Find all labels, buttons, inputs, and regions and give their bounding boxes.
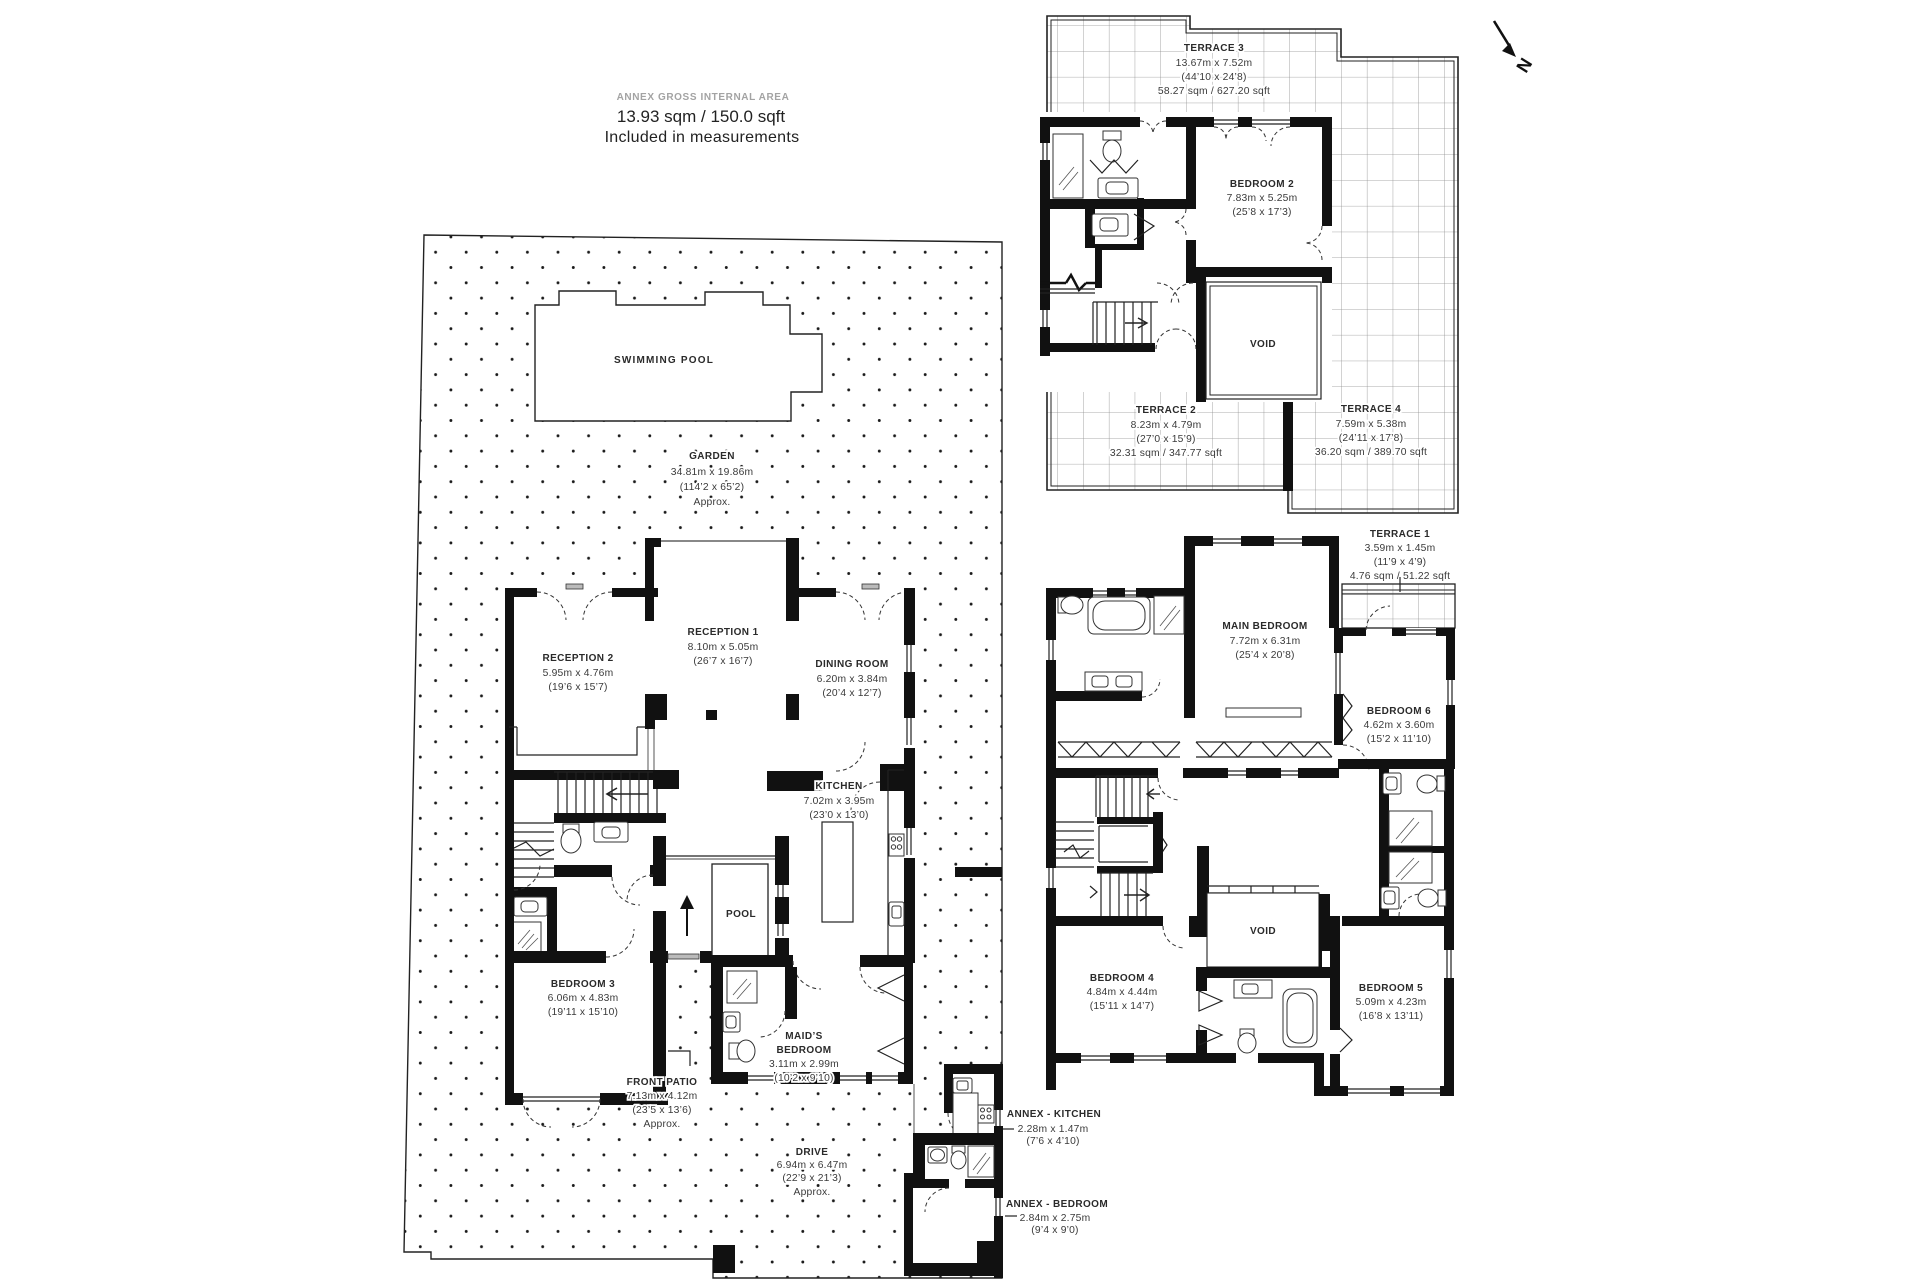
svg-text:(25’4 x 20’8): (25’4 x 20’8) <box>1235 650 1294 661</box>
svg-text:58.27 sqm / 627.20 sqft: 58.27 sqm / 627.20 sqft <box>1158 86 1270 97</box>
svg-text:5.95m x 4.76m: 5.95m x 4.76m <box>543 668 614 679</box>
svg-text:Included in measurements: Included in measurements <box>605 129 800 146</box>
svg-text:BEDROOM: BEDROOM <box>776 1045 831 1056</box>
svg-text:(44’10 x 24’8): (44’10 x 24’8) <box>1181 72 1246 83</box>
svg-text:2.84m x 2.75m: 2.84m x 2.75m <box>1020 1213 1091 1224</box>
svg-text:(16’8 x 13’11): (16’8 x 13’11) <box>1359 1011 1423 1022</box>
svg-text:3.11m x 2.99m: 3.11m x 2.99m <box>769 1059 839 1070</box>
svg-text:7.59m x 5.38m: 7.59m x 5.38m <box>1336 419 1407 430</box>
svg-text:7.02m x 3.95m: 7.02m x 3.95m <box>804 796 875 807</box>
svg-text:13.67m x 7.52m: 13.67m x 7.52m <box>1176 58 1253 69</box>
svg-text:BEDROOM 3: BEDROOM 3 <box>551 979 615 990</box>
svg-text:(15’2 x 11’10): (15’2 x 11’10) <box>1367 734 1431 745</box>
svg-text:Approx.: Approx. <box>694 497 731 508</box>
svg-text:(10’2 x 9’10): (10’2 x 9’10) <box>774 1073 833 1084</box>
svg-text:8.10m x 5.05m: 8.10m x 5.05m <box>688 642 759 653</box>
svg-text:Approx.: Approx. <box>794 1187 831 1198</box>
svg-text:BEDROOM 2: BEDROOM 2 <box>1230 179 1294 190</box>
svg-text:(114’2 x 65’2): (114’2 x 65’2) <box>680 482 744 493</box>
svg-text:SWIMMING POOL: SWIMMING POOL <box>614 355 714 366</box>
svg-text:FRONT PATIO: FRONT PATIO <box>627 1077 698 1088</box>
svg-text:6.94m x 6.47m: 6.94m x 6.47m <box>777 1160 848 1171</box>
svg-text:RECEPTION 2: RECEPTION 2 <box>542 653 613 664</box>
svg-text:7.83m x 5.25m: 7.83m x 5.25m <box>1227 193 1298 204</box>
svg-text:(19’11 x 15’10): (19’11 x 15’10) <box>548 1007 618 1018</box>
svg-text:RECEPTION 1: RECEPTION 1 <box>687 627 758 638</box>
svg-text:TERRACE 1: TERRACE 1 <box>1370 529 1430 540</box>
svg-text:13.93 sqm / 150.0 sqft: 13.93 sqm / 150.0 sqft <box>617 107 785 126</box>
svg-text:(15’11 x 14’7): (15’11 x 14’7) <box>1090 1001 1154 1012</box>
svg-text:TERRACE 2: TERRACE 2 <box>1136 405 1196 416</box>
svg-text:(9’4 x 9’0): (9’4 x 9’0) <box>1031 1225 1078 1236</box>
svg-text:VOID: VOID <box>1250 926 1276 937</box>
svg-text:KITCHEN: KITCHEN <box>815 781 862 792</box>
svg-text:TERRACE 4: TERRACE 4 <box>1341 404 1401 415</box>
svg-text:34.81m x 19.86m: 34.81m x 19.86m <box>671 467 754 478</box>
svg-text:4.62m x 3.60m: 4.62m x 3.60m <box>1364 720 1435 731</box>
svg-text:(20’4 x 12’7): (20’4 x 12’7) <box>822 688 881 699</box>
svg-text:(25’8 x 17’3): (25’8 x 17’3) <box>1232 207 1291 218</box>
svg-text:BEDROOM 6: BEDROOM 6 <box>1367 706 1431 717</box>
svg-text:(22’9 x 21’3): (22’9 x 21’3) <box>782 1173 841 1184</box>
svg-text:BEDROOM 5: BEDROOM 5 <box>1359 983 1423 994</box>
svg-text:TERRACE 3: TERRACE 3 <box>1184 43 1244 54</box>
svg-text:6.20m x 3.84m: 6.20m x 3.84m <box>817 674 888 685</box>
svg-text:(23’5 x 13’6): (23’5 x 13’6) <box>632 1105 691 1116</box>
svg-text:(19’6 x 15’7): (19’6 x 15’7) <box>548 682 607 693</box>
svg-text:(26’7 x 16’7): (26’7 x 16’7) <box>693 656 752 667</box>
svg-text:8.23m x 4.79m: 8.23m x 4.79m <box>1131 420 1202 431</box>
svg-text:2.28m x 1.47m: 2.28m x 1.47m <box>1018 1124 1089 1135</box>
svg-text:DINING ROOM: DINING ROOM <box>815 659 888 670</box>
svg-text:DRIVE: DRIVE <box>796 1147 829 1158</box>
svg-text:ANNEX - BEDROOM: ANNEX - BEDROOM <box>1006 1199 1108 1210</box>
svg-text:4.84m x 4.44m: 4.84m x 4.44m <box>1087 987 1158 998</box>
svg-text:(11’9 x 4’9): (11’9 x 4’9) <box>1374 557 1427 568</box>
svg-text:36.20 sqm / 389.70 sqft: 36.20 sqm / 389.70 sqft <box>1315 447 1427 458</box>
svg-text:GARDEN: GARDEN <box>689 451 735 462</box>
svg-text:ANNEX - KITCHEN: ANNEX - KITCHEN <box>1007 1109 1101 1120</box>
svg-text:7.13m x 4.12m: 7.13m x 4.12m <box>627 1091 698 1102</box>
svg-text:ANNEX GROSS INTERNAL AREA: ANNEX GROSS INTERNAL AREA <box>617 92 790 103</box>
svg-text:6.06m x 4.83m: 6.06m x 4.83m <box>548 993 619 1004</box>
svg-text:VOID: VOID <box>1250 339 1276 350</box>
svg-text:(23’0 x 13’0): (23’0 x 13’0) <box>809 810 868 821</box>
svg-text:Approx.: Approx. <box>644 1119 681 1130</box>
svg-text:3.59m x 1.45m: 3.59m x 1.45m <box>1365 543 1436 554</box>
svg-text:BEDROOM 4: BEDROOM 4 <box>1090 973 1154 984</box>
svg-text:MAIN BEDROOM: MAIN BEDROOM <box>1222 621 1307 632</box>
svg-text:5.09m x 4.23m: 5.09m x 4.23m <box>1356 997 1427 1008</box>
svg-text:POOL: POOL <box>726 909 756 920</box>
svg-text:MAID’S: MAID’S <box>785 1031 822 1042</box>
svg-text:(27’0 x 15’9): (27’0 x 15’9) <box>1136 434 1195 445</box>
svg-text:(7’6 x 4’10): (7’6 x 4’10) <box>1026 1136 1079 1147</box>
svg-text:32.31 sqm / 347.77 sqft: 32.31 sqm / 347.77 sqft <box>1110 448 1222 459</box>
svg-text:(24’11 x 17’8): (24’11 x 17’8) <box>1339 433 1403 444</box>
svg-text:7.72m x 6.31m: 7.72m x 6.31m <box>1230 636 1301 647</box>
